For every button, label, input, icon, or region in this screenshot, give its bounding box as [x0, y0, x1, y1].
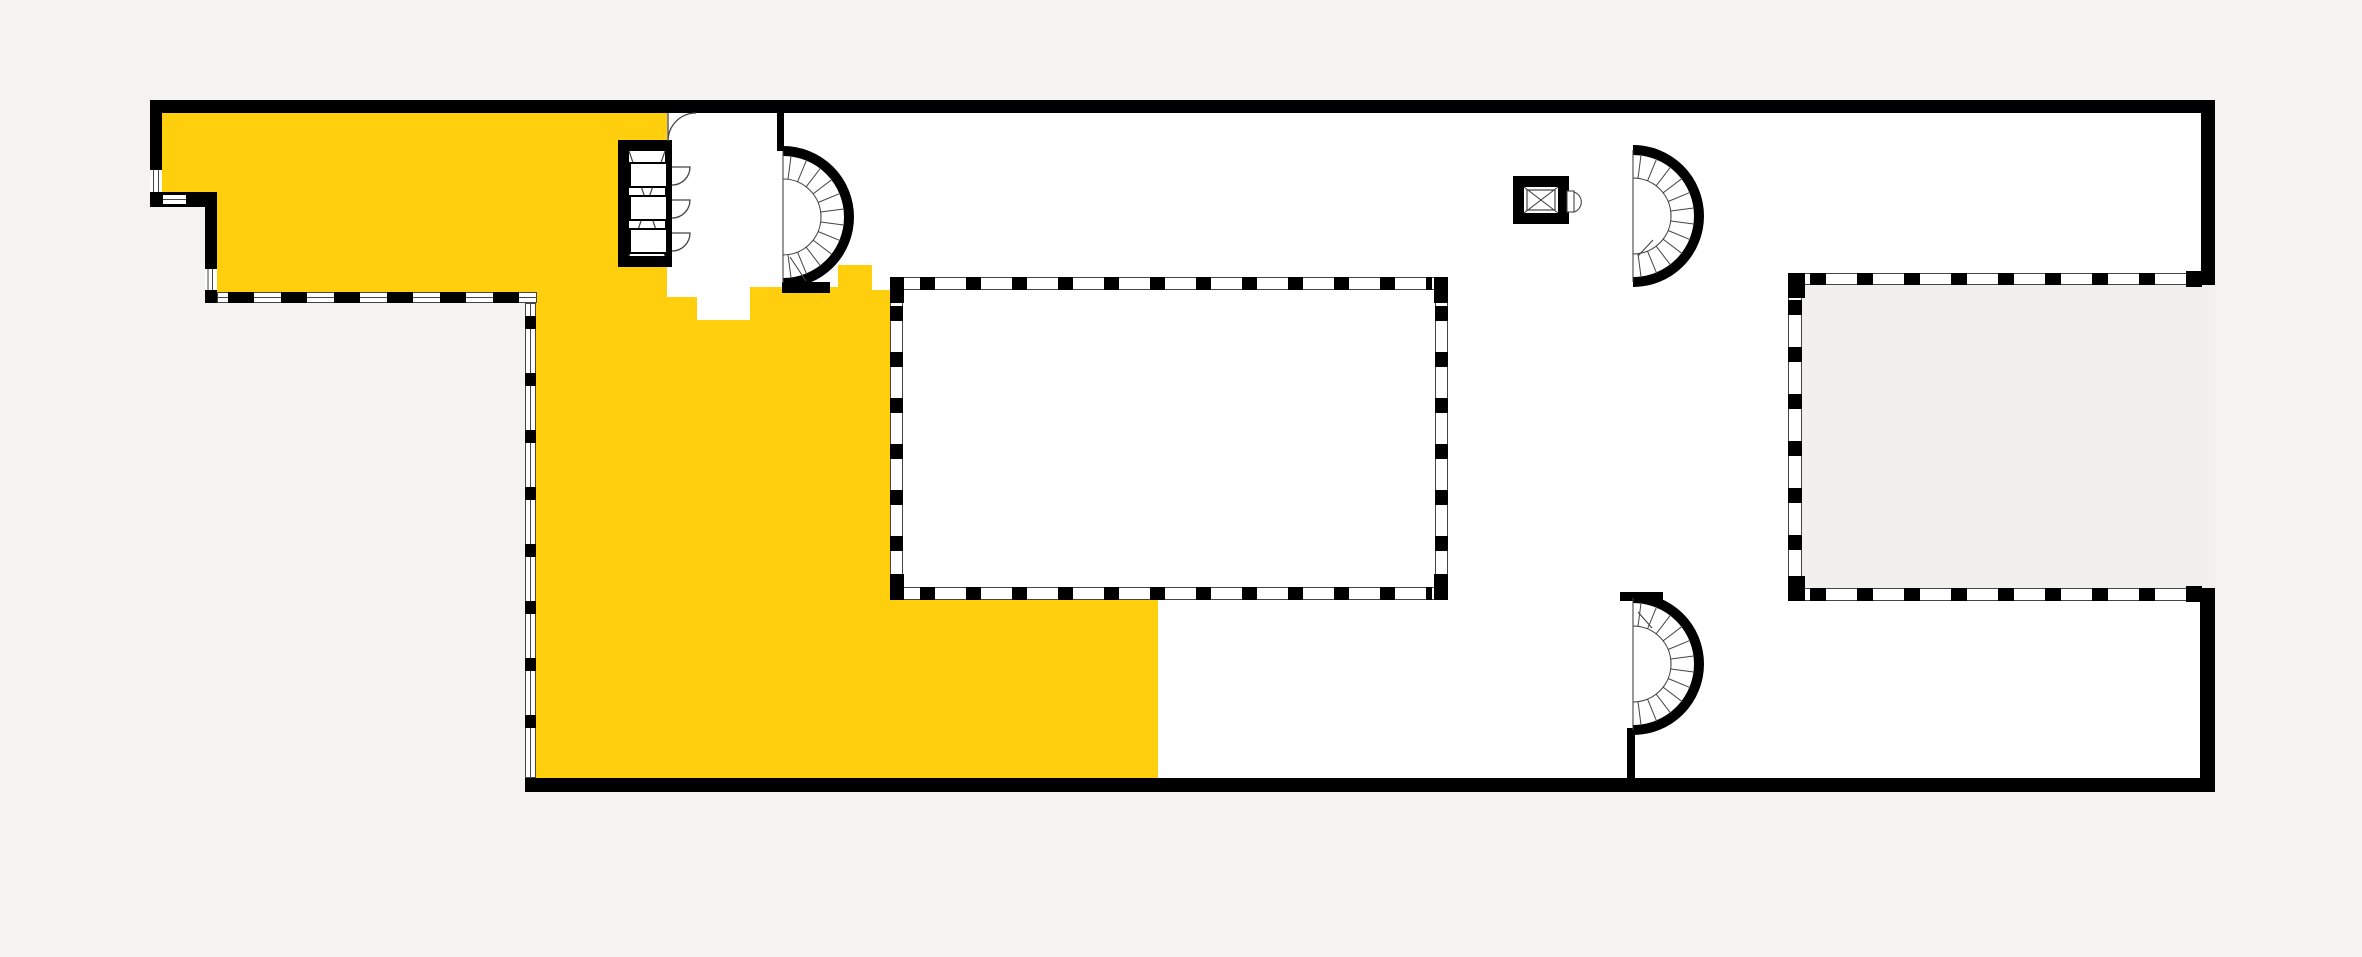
- floorplan-svg: [0, 0, 2362, 957]
- stair-southeast-wall-stub: [1627, 728, 1635, 778]
- room-post: [1434, 574, 1448, 600]
- courtyard-post: [1788, 273, 1805, 298]
- courtyard-band-left: [1788, 273, 1802, 601]
- core-room-floor: [903, 290, 1435, 587]
- elevator-car: [630, 229, 667, 253]
- room-post: [1434, 277, 1448, 303]
- room-post: [890, 277, 904, 303]
- facade-wing-bottom: [217, 292, 537, 303]
- courtyard-post: [2186, 271, 2202, 287]
- courtyard-post: [2186, 586, 2202, 602]
- courtyard: [1802, 285, 2215, 588]
- wall-left-upper: [150, 100, 162, 170]
- wall-left-stub-post: [205, 290, 217, 303]
- door-leaf: [1567, 191, 1574, 212]
- facade-west-lower: [525, 303, 536, 778]
- wall-left-stub: [205, 207, 217, 269]
- room-band-left: [890, 277, 903, 600]
- wall-right-upper: [2201, 100, 2215, 285]
- wall-right-lower: [2200, 588, 2215, 792]
- window-left-2: [205, 269, 216, 290]
- floorplan-canvas: [0, 0, 2362, 957]
- core-room: [890, 277, 1448, 600]
- room-post: [890, 574, 904, 600]
- elevator-car: [630, 163, 667, 187]
- elevator-cars: [630, 163, 667, 253]
- wall-bottom: [525, 778, 2215, 792]
- courtyard-post: [1788, 576, 1805, 601]
- elevator-car: [630, 196, 667, 220]
- window-left-1: [150, 170, 162, 192]
- wall-top: [150, 100, 2215, 113]
- room-band-right: [1435, 277, 1448, 600]
- stair-west-wall-stub: [777, 113, 784, 151]
